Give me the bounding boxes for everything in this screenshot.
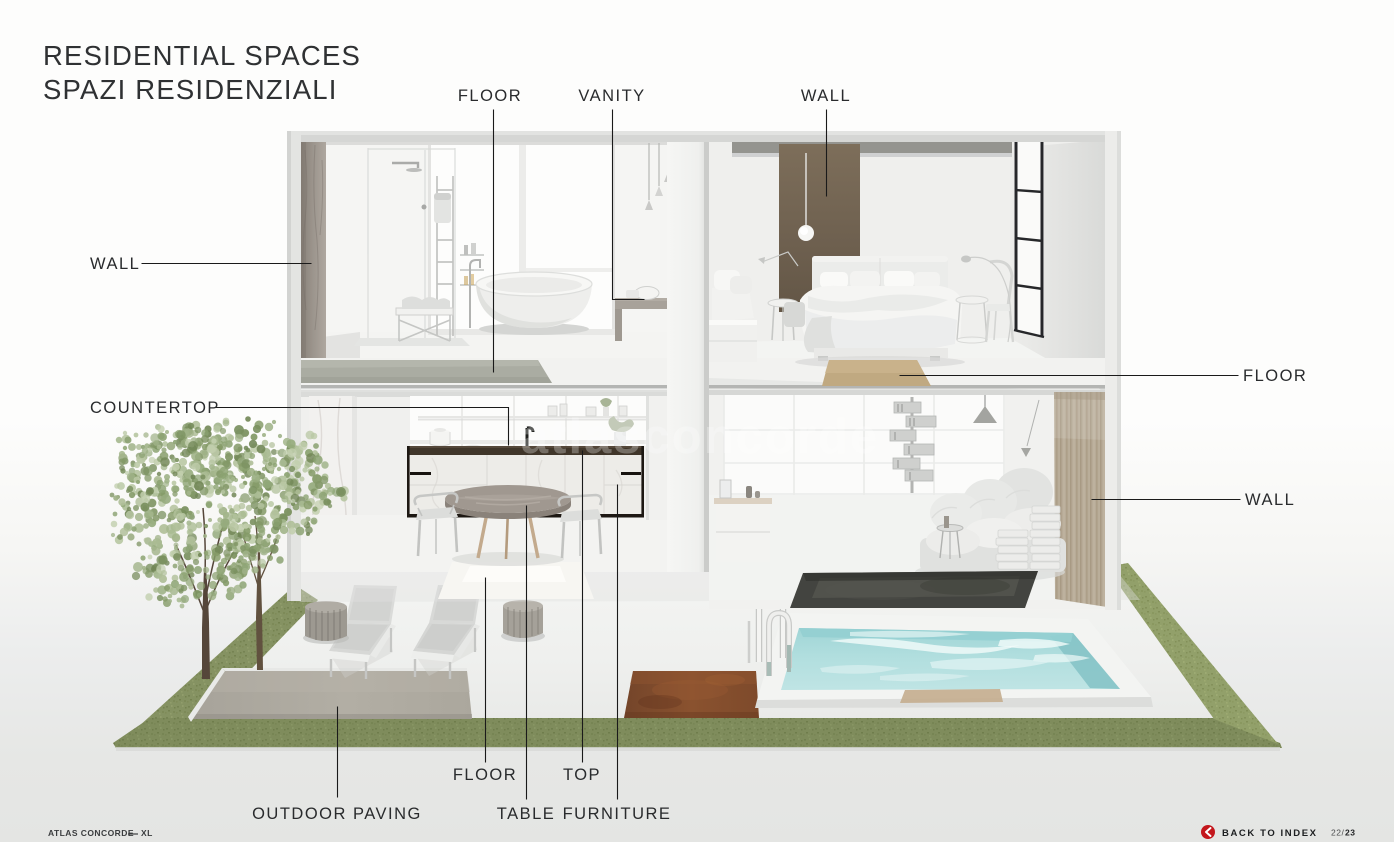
svg-text:atlasconcorde: atlasconcorde bbox=[521, 410, 879, 464]
svg-text:VANITY: VANITY bbox=[578, 87, 645, 105]
svg-text:BACK TO INDEX: BACK TO INDEX bbox=[1222, 828, 1318, 839]
svg-text:ATLAS CONCORDE: ATLAS CONCORDE bbox=[48, 828, 134, 838]
svg-text:XL: XL bbox=[141, 828, 153, 838]
svg-text:22/: 22/ bbox=[1331, 828, 1344, 838]
svg-text:TOP: TOP bbox=[563, 766, 601, 784]
svg-text:WALL: WALL bbox=[801, 87, 851, 105]
svg-text:OUTDOOR PAVING: OUTDOOR PAVING bbox=[252, 805, 422, 823]
svg-text:SPAZI RESIDENZIALI: SPAZI RESIDENZIALI bbox=[43, 74, 338, 105]
svg-text:FURNITURE: FURNITURE bbox=[563, 805, 672, 823]
svg-text:FLOOR: FLOOR bbox=[1243, 367, 1307, 385]
svg-text:WALL: WALL bbox=[1245, 491, 1295, 509]
svg-text:FLOOR: FLOOR bbox=[453, 766, 517, 784]
svg-text:23: 23 bbox=[1345, 828, 1355, 838]
svg-text:FLOOR: FLOOR bbox=[458, 87, 522, 105]
svg-text:COUNTERTOP: COUNTERTOP bbox=[90, 399, 220, 417]
svg-text:RESIDENTIAL SPACES: RESIDENTIAL SPACES bbox=[43, 40, 361, 71]
svg-text:WALL: WALL bbox=[90, 255, 140, 273]
svg-text:TABLE: TABLE bbox=[497, 805, 556, 823]
